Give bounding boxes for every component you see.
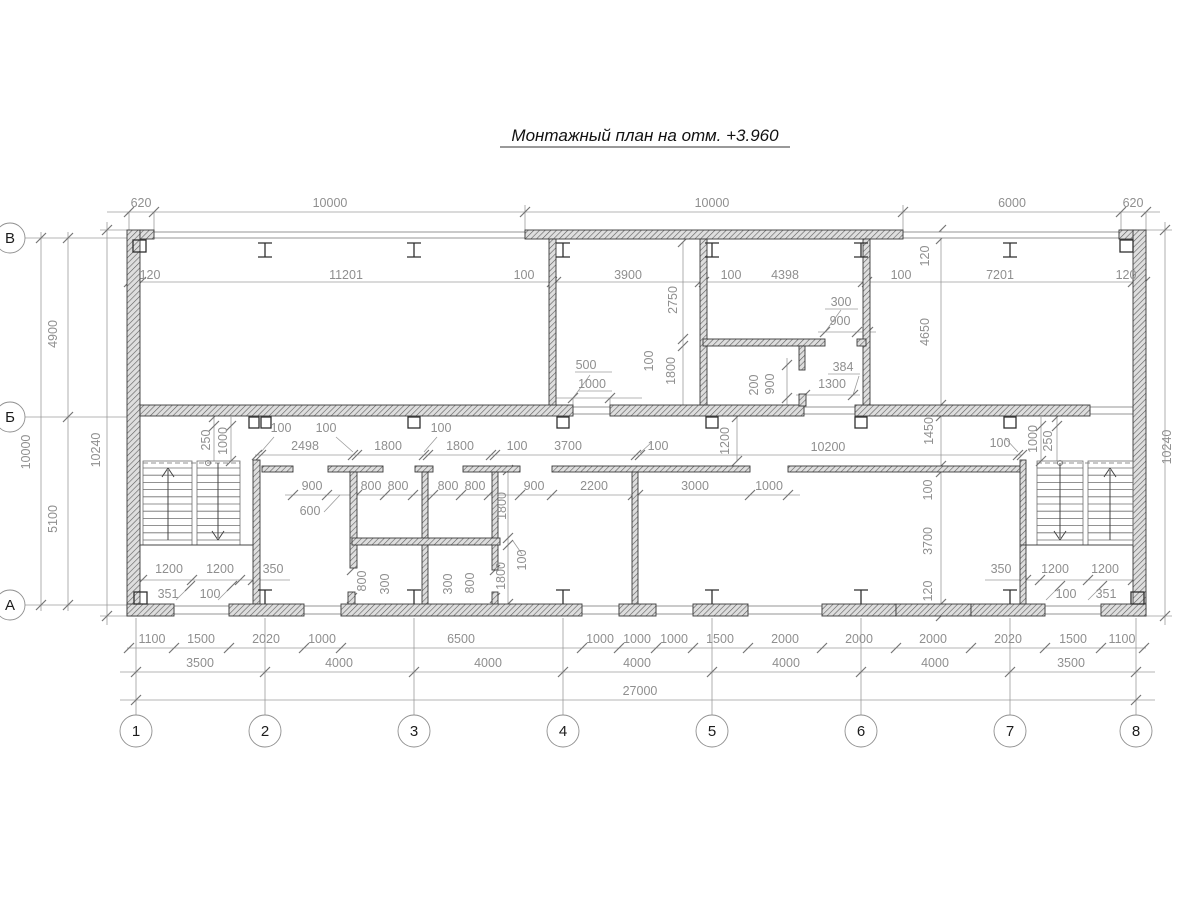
- dimension-label: 100: [271, 421, 292, 435]
- door-sill: [656, 606, 693, 614]
- dimension-label: 1800: [495, 492, 509, 520]
- dimension-label: 100: [642, 351, 656, 372]
- dimension-label: 100: [200, 587, 221, 601]
- corridor-wall: [552, 466, 750, 472]
- dimension-label: 3700: [554, 439, 582, 453]
- dimension-label: 900: [302, 479, 323, 493]
- door-sill: [573, 407, 610, 414]
- dimension-label: 6000: [998, 196, 1026, 210]
- dimension-label: 5100: [46, 505, 60, 533]
- dimension-label: 300: [831, 295, 852, 309]
- dimension-label: 800: [361, 479, 382, 493]
- room-partition: [632, 472, 638, 604]
- dimension-label: 900: [524, 479, 545, 493]
- dimension-label: 1300: [818, 377, 846, 391]
- partition-wall: [703, 339, 825, 346]
- exterior-wall-bottom: [619, 604, 656, 616]
- exterior-wall-bottom: [229, 604, 304, 616]
- column-axis-circle-label: 5: [708, 723, 716, 740]
- dimension-label: 10000: [313, 196, 348, 210]
- dimension-label: 1200: [206, 562, 234, 576]
- dimension-label: 2020: [994, 632, 1022, 646]
- corridor-wall: [788, 466, 1020, 472]
- wall-corner-stub: [140, 230, 154, 239]
- top-wall-thin-right: [903, 232, 1119, 238]
- corridor-wall: [328, 466, 383, 472]
- dimension-label: 500: [576, 358, 597, 372]
- dimension-label: 100: [921, 480, 935, 501]
- dimension-label: 2000: [919, 632, 947, 646]
- dimension-label: 1200: [1091, 562, 1119, 576]
- dimension-label: 10240: [1160, 430, 1174, 465]
- dimension-label: 10240: [89, 433, 103, 468]
- dimension-label: 3500: [186, 656, 214, 670]
- dimension-label: 1800: [664, 357, 678, 385]
- dimension-label: 350: [263, 562, 284, 576]
- dimension-label: 11201: [329, 268, 363, 282]
- dimension-label: 100: [891, 268, 912, 282]
- floor-plan-svg: Монтажный план на отм. +3.960: [0, 0, 1200, 900]
- column-axis-circle-label: 3: [410, 723, 418, 740]
- dimension-label: 120: [140, 268, 161, 282]
- dimension-label: 200: [747, 375, 761, 396]
- dimension-label: 1000: [216, 427, 230, 455]
- dimension-label: 1100: [1109, 632, 1136, 646]
- column-axis-circle-label: 8: [1132, 723, 1140, 740]
- joint-mark: [557, 417, 569, 428]
- exterior-wall-bottom: [127, 604, 174, 616]
- dimension-label: 4398: [771, 268, 799, 282]
- door-sill: [804, 407, 855, 414]
- partition-wall: [549, 239, 556, 405]
- partition-wall: [863, 239, 870, 405]
- dimension-label: 7201: [986, 268, 1014, 282]
- dimension-label: 4900: [46, 320, 60, 348]
- exterior-wall-bottom: [341, 604, 582, 616]
- column-axis-circle-label: 6: [857, 723, 865, 740]
- cabin-partition: [350, 472, 357, 568]
- exterior-wall-right: [1133, 230, 1146, 616]
- cabin-partition: [492, 472, 498, 570]
- column-mark: [1120, 240, 1133, 252]
- door-sill: [582, 606, 619, 614]
- dimension-label: 4000: [325, 656, 353, 670]
- dimension-label: 1200: [1041, 562, 1069, 576]
- row-axis-circle-label: А: [5, 597, 15, 614]
- dimension-label: 351: [158, 587, 179, 601]
- interior-wall-axis-b: [610, 405, 804, 416]
- dimension-label: 620: [131, 196, 152, 210]
- dimension-label: 2498: [291, 439, 319, 453]
- dimension-label: 1000: [755, 479, 783, 493]
- dimension-label: 300: [441, 574, 455, 595]
- stairwell-right: [1020, 461, 1133, 546]
- column-axis-circle-label: 7: [1006, 723, 1014, 740]
- wall-corner-stub: [1119, 230, 1133, 239]
- dimension-label: 1100: [139, 632, 166, 646]
- stair-wall-right: [1020, 460, 1026, 604]
- exterior-wall-bottom: [693, 604, 748, 616]
- dimension-label: 3900: [614, 268, 642, 282]
- dimension-label: 1500: [1059, 632, 1087, 646]
- row-axis-circle-label: В: [5, 230, 15, 247]
- dimension-label: 1800: [494, 562, 508, 590]
- dimension-label: 800: [388, 479, 409, 493]
- dimension-label: 27000: [623, 684, 658, 698]
- dimension-label: 10000: [19, 435, 33, 470]
- exterior-wall-bottom: [971, 604, 1045, 616]
- dimension-label: 800: [355, 571, 369, 592]
- partition-wall: [700, 239, 707, 405]
- column-axis-circle-label: 4: [559, 723, 567, 740]
- door-sill: [1045, 606, 1101, 614]
- dimension-label: 1000: [586, 632, 614, 646]
- dimension-label: 120: [1116, 268, 1137, 282]
- stair-wall-left: [253, 460, 260, 604]
- dimension-label: 1800: [446, 439, 474, 453]
- dimension-label: 1200: [155, 562, 183, 576]
- stair-direction-arrows: [162, 463, 224, 540]
- joint-mark: [1004, 417, 1016, 428]
- dimension-label: 2750: [666, 286, 680, 314]
- dimension-label: 1000: [308, 632, 336, 646]
- dimension-label: 900: [763, 374, 777, 395]
- dimension-label: 1500: [706, 632, 734, 646]
- dimension-label: 1000: [660, 632, 688, 646]
- exterior-wall-left: [127, 230, 140, 616]
- dimension-label: 2000: [845, 632, 873, 646]
- dimension-label: 1000: [623, 632, 651, 646]
- interior-wall-axis-b: [140, 405, 573, 416]
- interior-wall-axis-b: [855, 405, 1090, 416]
- dimension-label: 100: [515, 550, 529, 571]
- dimension-label: 100: [431, 421, 452, 435]
- beam-marks-top: [258, 243, 1017, 257]
- exterior-wall-bottom: [822, 604, 896, 616]
- dimension-label: 2000: [771, 632, 799, 646]
- dimension-label: 600: [300, 504, 321, 518]
- column-axis-circle-label: 2: [261, 723, 269, 740]
- cabin-partition: [352, 538, 500, 545]
- dimension-label: 100: [514, 268, 535, 282]
- column-axis-circle-label: 1: [132, 723, 140, 740]
- dimension-label: 10000: [695, 196, 730, 210]
- door-sill: [748, 606, 822, 614]
- dimension-label: 384: [833, 360, 854, 374]
- joint-mark: [408, 417, 420, 428]
- dimension-label: 4000: [474, 656, 502, 670]
- joint-mark: [249, 417, 259, 428]
- dimension-label: 250: [199, 430, 213, 451]
- drawing-title: Монтажный план на отм. +3.960: [511, 126, 779, 145]
- dimension-label: 4650: [918, 318, 932, 346]
- dimension-label: 1450: [922, 417, 936, 445]
- dimension-label: 100: [1056, 587, 1077, 601]
- dimension-label: 1200: [718, 427, 732, 455]
- wall-stub: [857, 339, 866, 346]
- door-sill: [174, 606, 229, 614]
- dimension-label: 10200: [811, 440, 846, 454]
- joint-mark: [261, 417, 271, 428]
- corridor-wall: [415, 466, 433, 472]
- drawing-sheet: Монтажный план на отм. +3.960: [0, 0, 1200, 900]
- dimension-label: 100: [648, 439, 669, 453]
- dimension-label: 350: [991, 562, 1012, 576]
- corridor-wall: [463, 466, 520, 472]
- joint-mark: [706, 417, 718, 428]
- dimension-label: 100: [721, 268, 742, 282]
- dimension-label: 100: [990, 436, 1011, 450]
- dimension-label: 3500: [1057, 656, 1085, 670]
- stairwell-left: [140, 461, 253, 546]
- dimension-label: 620: [1123, 196, 1144, 210]
- leader-lines: [176, 309, 1102, 600]
- dimension-label: 1500: [187, 632, 215, 646]
- dim-tick: [227, 581, 237, 591]
- dimension-label: 100: [507, 439, 528, 453]
- dimension-label: 4000: [772, 656, 800, 670]
- dimension-label: 2020: [252, 632, 280, 646]
- dimension-label: 3700: [921, 527, 935, 555]
- corridor-wall: [262, 466, 293, 472]
- exterior-wall-bottom: [896, 604, 971, 616]
- exterior-wall-bottom: [1101, 604, 1146, 616]
- dimension-label: 3000: [681, 479, 709, 493]
- dimension-label: 120: [918, 246, 932, 267]
- wall-stub: [348, 592, 355, 604]
- dimension-label: 351: [1096, 587, 1117, 601]
- dimension-label: 1000: [1026, 425, 1040, 453]
- door-sill: [1090, 407, 1133, 414]
- dimension-label: 900: [830, 314, 851, 328]
- dimension-label: 250: [1041, 431, 1055, 452]
- dimension-label: 4000: [623, 656, 651, 670]
- door-sill: [304, 606, 341, 614]
- dimension-label: 120: [921, 581, 935, 602]
- dimension-label: 1800: [374, 439, 402, 453]
- row-axis-circle-label: Б: [5, 409, 15, 426]
- dimension-label: 100: [316, 421, 337, 435]
- axis-circles: 12345678ВБА: [0, 223, 1152, 747]
- dimension-label: 6500: [447, 632, 475, 646]
- joint-mark: [855, 417, 867, 428]
- wall-stub: [492, 592, 498, 604]
- dimension-label: 800: [463, 573, 477, 594]
- exterior-wall-top-panel: [525, 230, 903, 239]
- wall-stub: [799, 346, 805, 370]
- wall-stub: [799, 394, 806, 406]
- dimension-label: 4000: [921, 656, 949, 670]
- dimension-labels: 6201000010000600062012011201100390010043…: [19, 196, 1174, 698]
- stair-direction-arrows: [1054, 463, 1116, 540]
- dimension-label: 300: [378, 574, 392, 595]
- dimension-label: 800: [465, 479, 486, 493]
- top-wall-thin-left: [140, 232, 525, 238]
- dimension-label: 1000: [578, 377, 606, 391]
- dimension-label: 2200: [580, 479, 608, 493]
- dimension-label: 800: [438, 479, 459, 493]
